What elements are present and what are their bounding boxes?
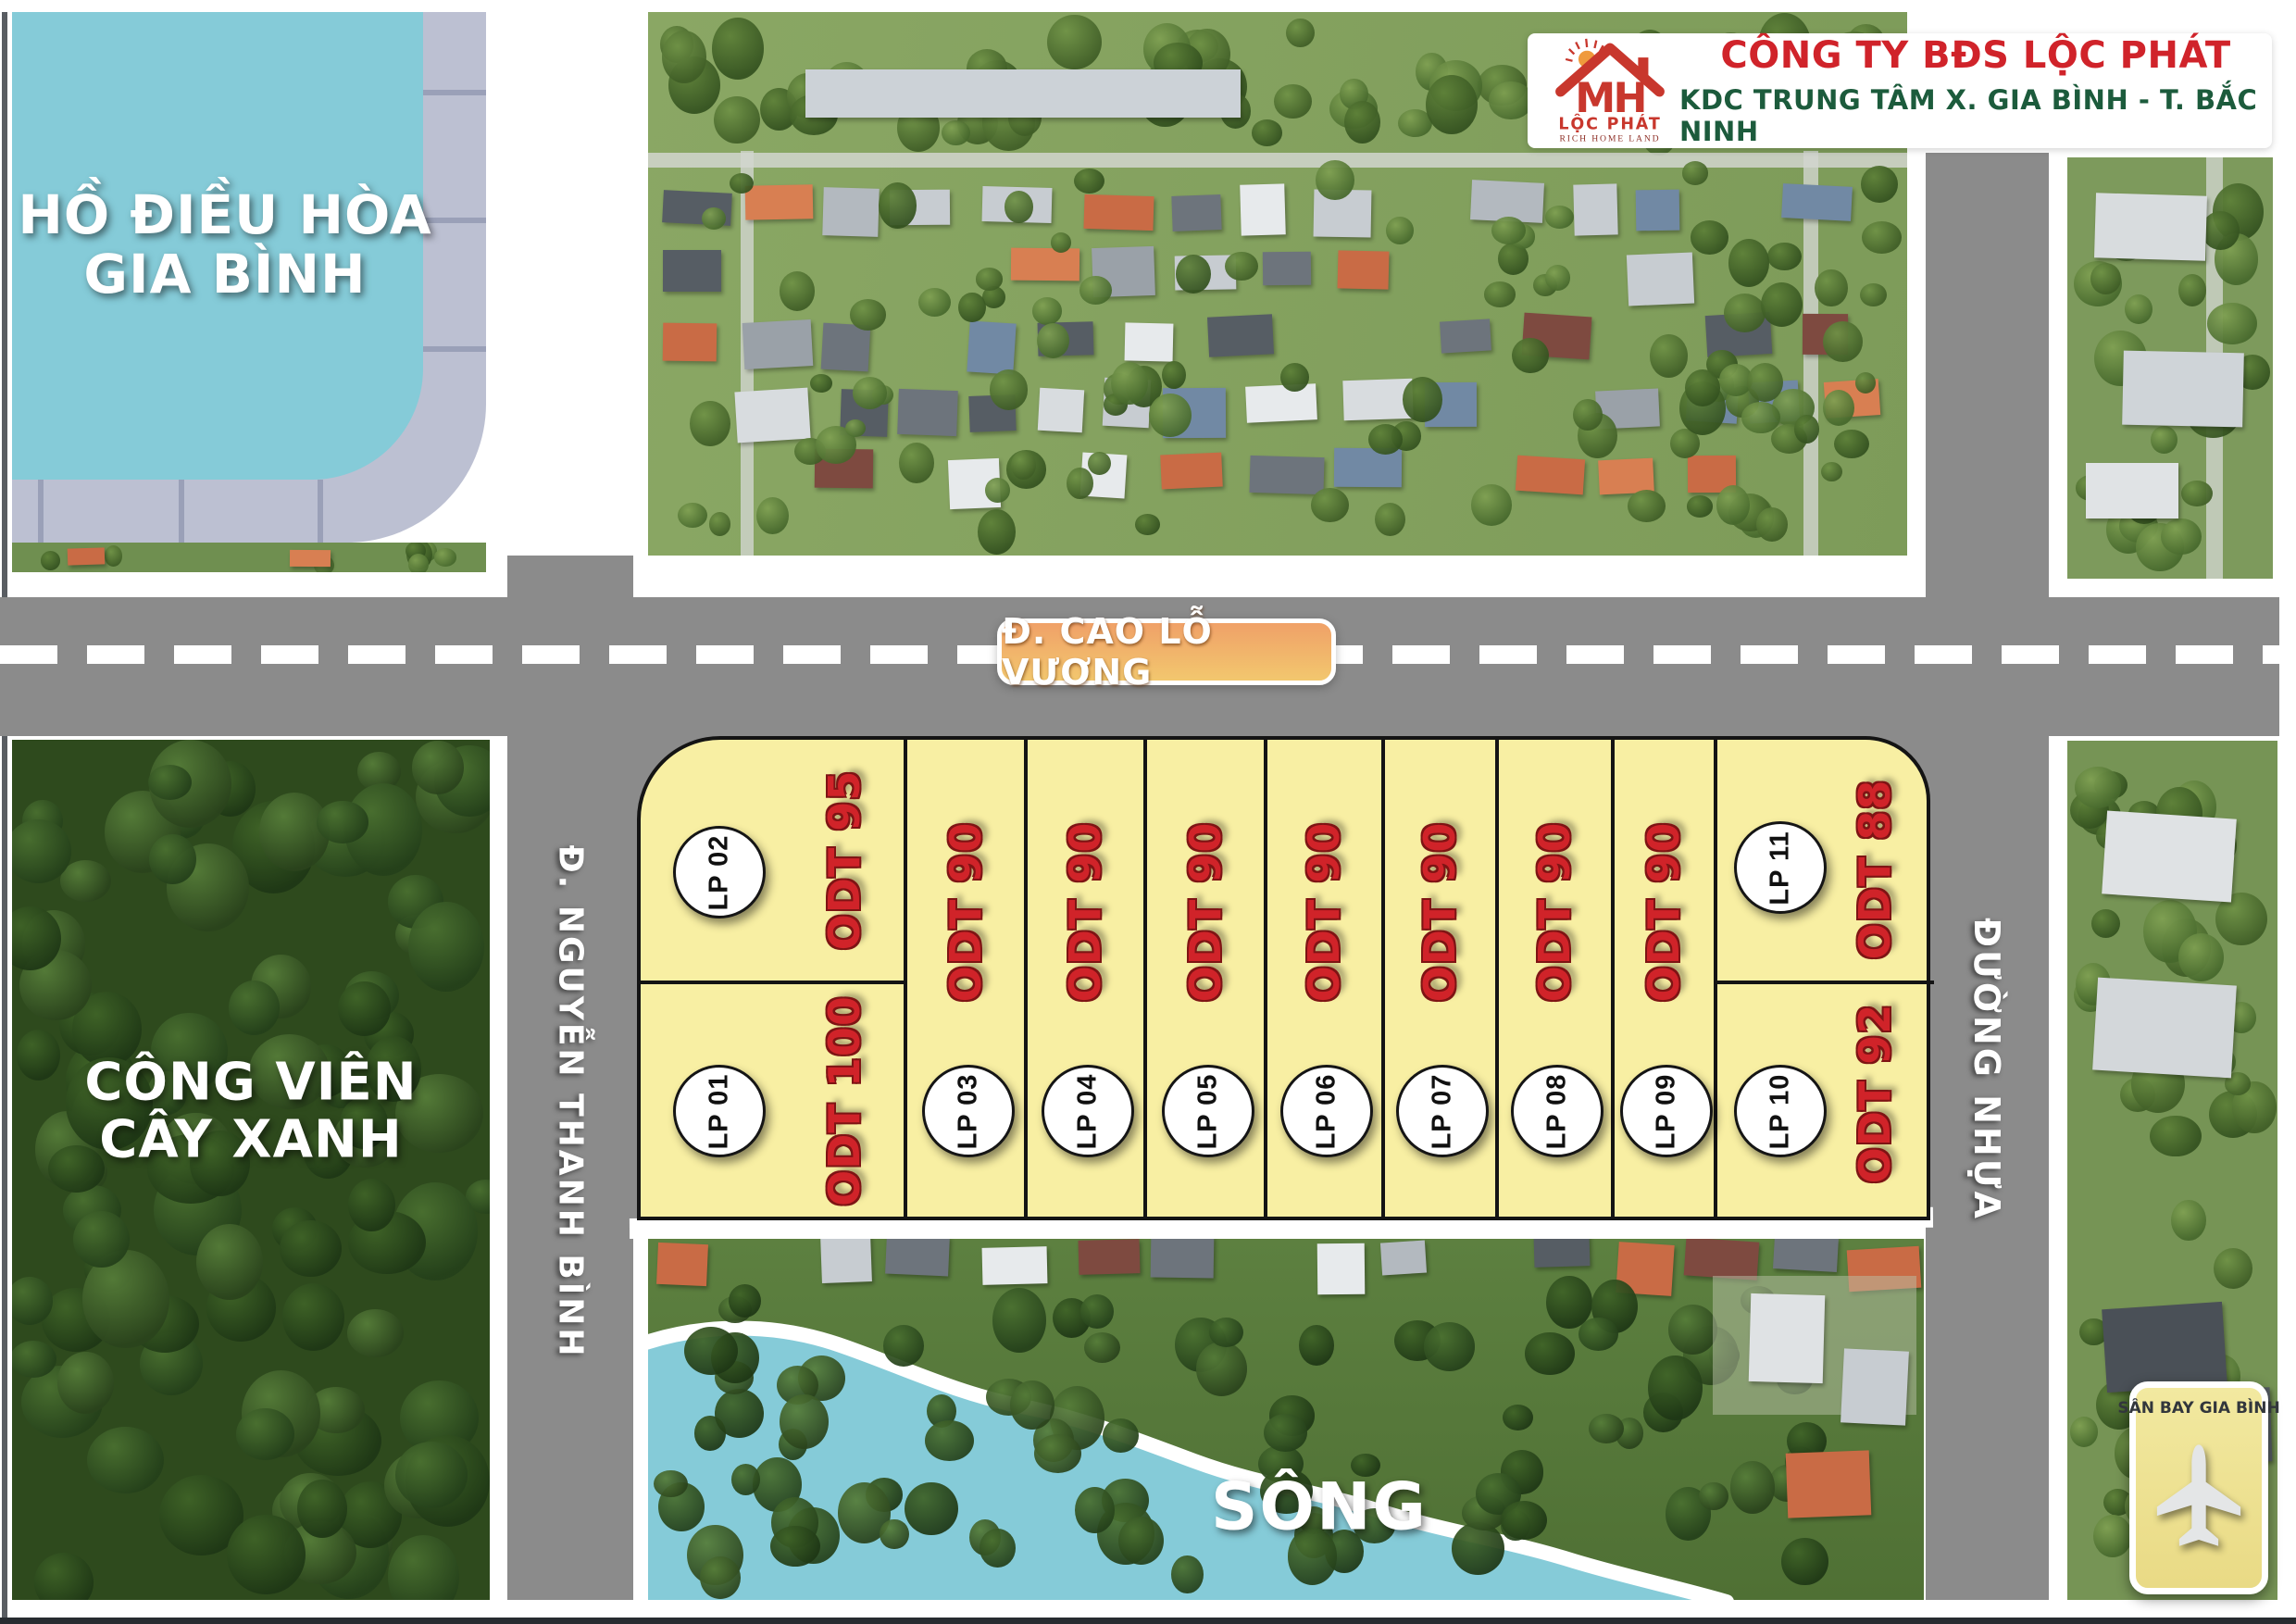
plot-id-lp04: LP 04 [1042,1065,1134,1157]
lake-bottom-photo-sliver [12,543,486,572]
company-header: MH LỘC PHÁT RICH HOME LAND CÔNG TY BĐS L… [1528,33,2272,148]
plot-id-lp03: LP 03 [922,1065,1015,1157]
plot-area-lp10: ODT 92 [1850,1004,1900,1184]
walkway-tick [423,218,486,223]
aerial-riverbank-photo [648,1239,1924,1600]
plot-divider [1495,740,1499,1217]
plot-area-lp04: ODT 90 [1060,822,1110,1003]
company-name: CÔNG TY BĐS LỘC PHÁT [1720,34,2230,77]
plot-area-lp08: ODT 90 [1529,822,1579,1003]
aerial-right-top-photo [2067,157,2273,579]
plot-area-lp03: ODT 90 [941,822,991,1003]
river-label: SÔNG [1211,1472,1428,1543]
plot-divider [1024,740,1028,1217]
poster-bottom-edge [0,1618,2296,1624]
road-nhua-surface [1926,153,2049,1600]
plot-area-lp05: ODT 90 [1180,822,1230,1003]
road-label-duong-nhua: ĐƯỜNG NHỰA [1966,918,2007,1221]
plot-divider [904,740,907,1217]
park-forest-photo [12,740,490,1600]
plot-area-lp11: ODT 88 [1850,780,1900,960]
plot-area-lp09: ODT 90 [1639,822,1689,1003]
logo-brand: LỘC PHÁT [1558,113,1661,133]
logo-tagline: RICH HOME LAND [1560,133,1661,144]
walkway-tick [423,90,486,95]
walkway-tick [318,480,323,543]
plot-id-lp06: LP 06 [1280,1065,1373,1157]
river-shape [648,1239,1924,1600]
road-label-cao-lo-vuong: Đ. CAO LỖ VƯƠNG [997,618,1336,685]
walkway-tick [179,480,184,543]
plot-area-lp01: ODT 100 [819,995,869,1206]
road-label-nguyen-thanh-binh: Đ. NGUYỄN THANH BÌNH [552,844,590,1358]
plot-divider [1381,740,1385,1217]
project-location: KDC TRUNG TÂM X. GIA BÌNH - T. BẮC NINH [1679,84,2272,147]
plot-divider [1264,740,1267,1217]
airport-label: SÂN BAY GIA BÌNH [2117,1399,2279,1418]
plot-area-lp06: ODT 90 [1299,822,1349,1003]
plot-divider [1143,740,1147,1217]
plot-id-lp09: LP 09 [1620,1065,1713,1157]
walkway-tick [38,480,44,543]
plot-area-lp07: ODT 90 [1415,822,1465,1003]
lake-label: HỒ ĐIỀU HÒAGIA BÌNH [18,186,431,305]
plot-id-lp02: LP 02 [673,826,766,918]
plot-id-lp01: LP 01 [673,1065,766,1157]
plot-map-poster: CÔNG VIÊNCÂY XANH HỒ ĐIỀU HÒAGIA BÌNH SÔ… [0,0,2296,1624]
plot-id-lp10: LP 10 [1734,1065,1827,1157]
plot-divider [1716,981,1934,984]
plots-block: LP 02 ODT 95 LP 01 ODT 100 ODT 90 LP 03 … [637,736,1930,1220]
airport-badge: SÂN BAY GIA BÌNH [2129,1381,2268,1594]
loc-phat-logo-icon: MH LỘC PHÁT RICH HOME LAND [1541,37,1679,144]
poster-left-edge [2,12,7,1618]
airplane-icon [2154,1427,2243,1566]
plot-id-lp11: LP 11 [1734,821,1827,914]
park-label: CÔNG VIÊNCÂY XANH [84,1054,417,1168]
plot-divider [641,981,905,984]
plot-id-lp08: LP 08 [1511,1065,1603,1157]
walkway-tick [423,346,486,352]
plot-id-lp07: LP 07 [1396,1065,1489,1157]
plot-divider [1714,740,1717,1217]
plot-divider [1611,740,1615,1217]
plot-area-lp02: ODT 95 [819,770,869,951]
plot-id-lp05: LP 05 [1162,1065,1254,1157]
